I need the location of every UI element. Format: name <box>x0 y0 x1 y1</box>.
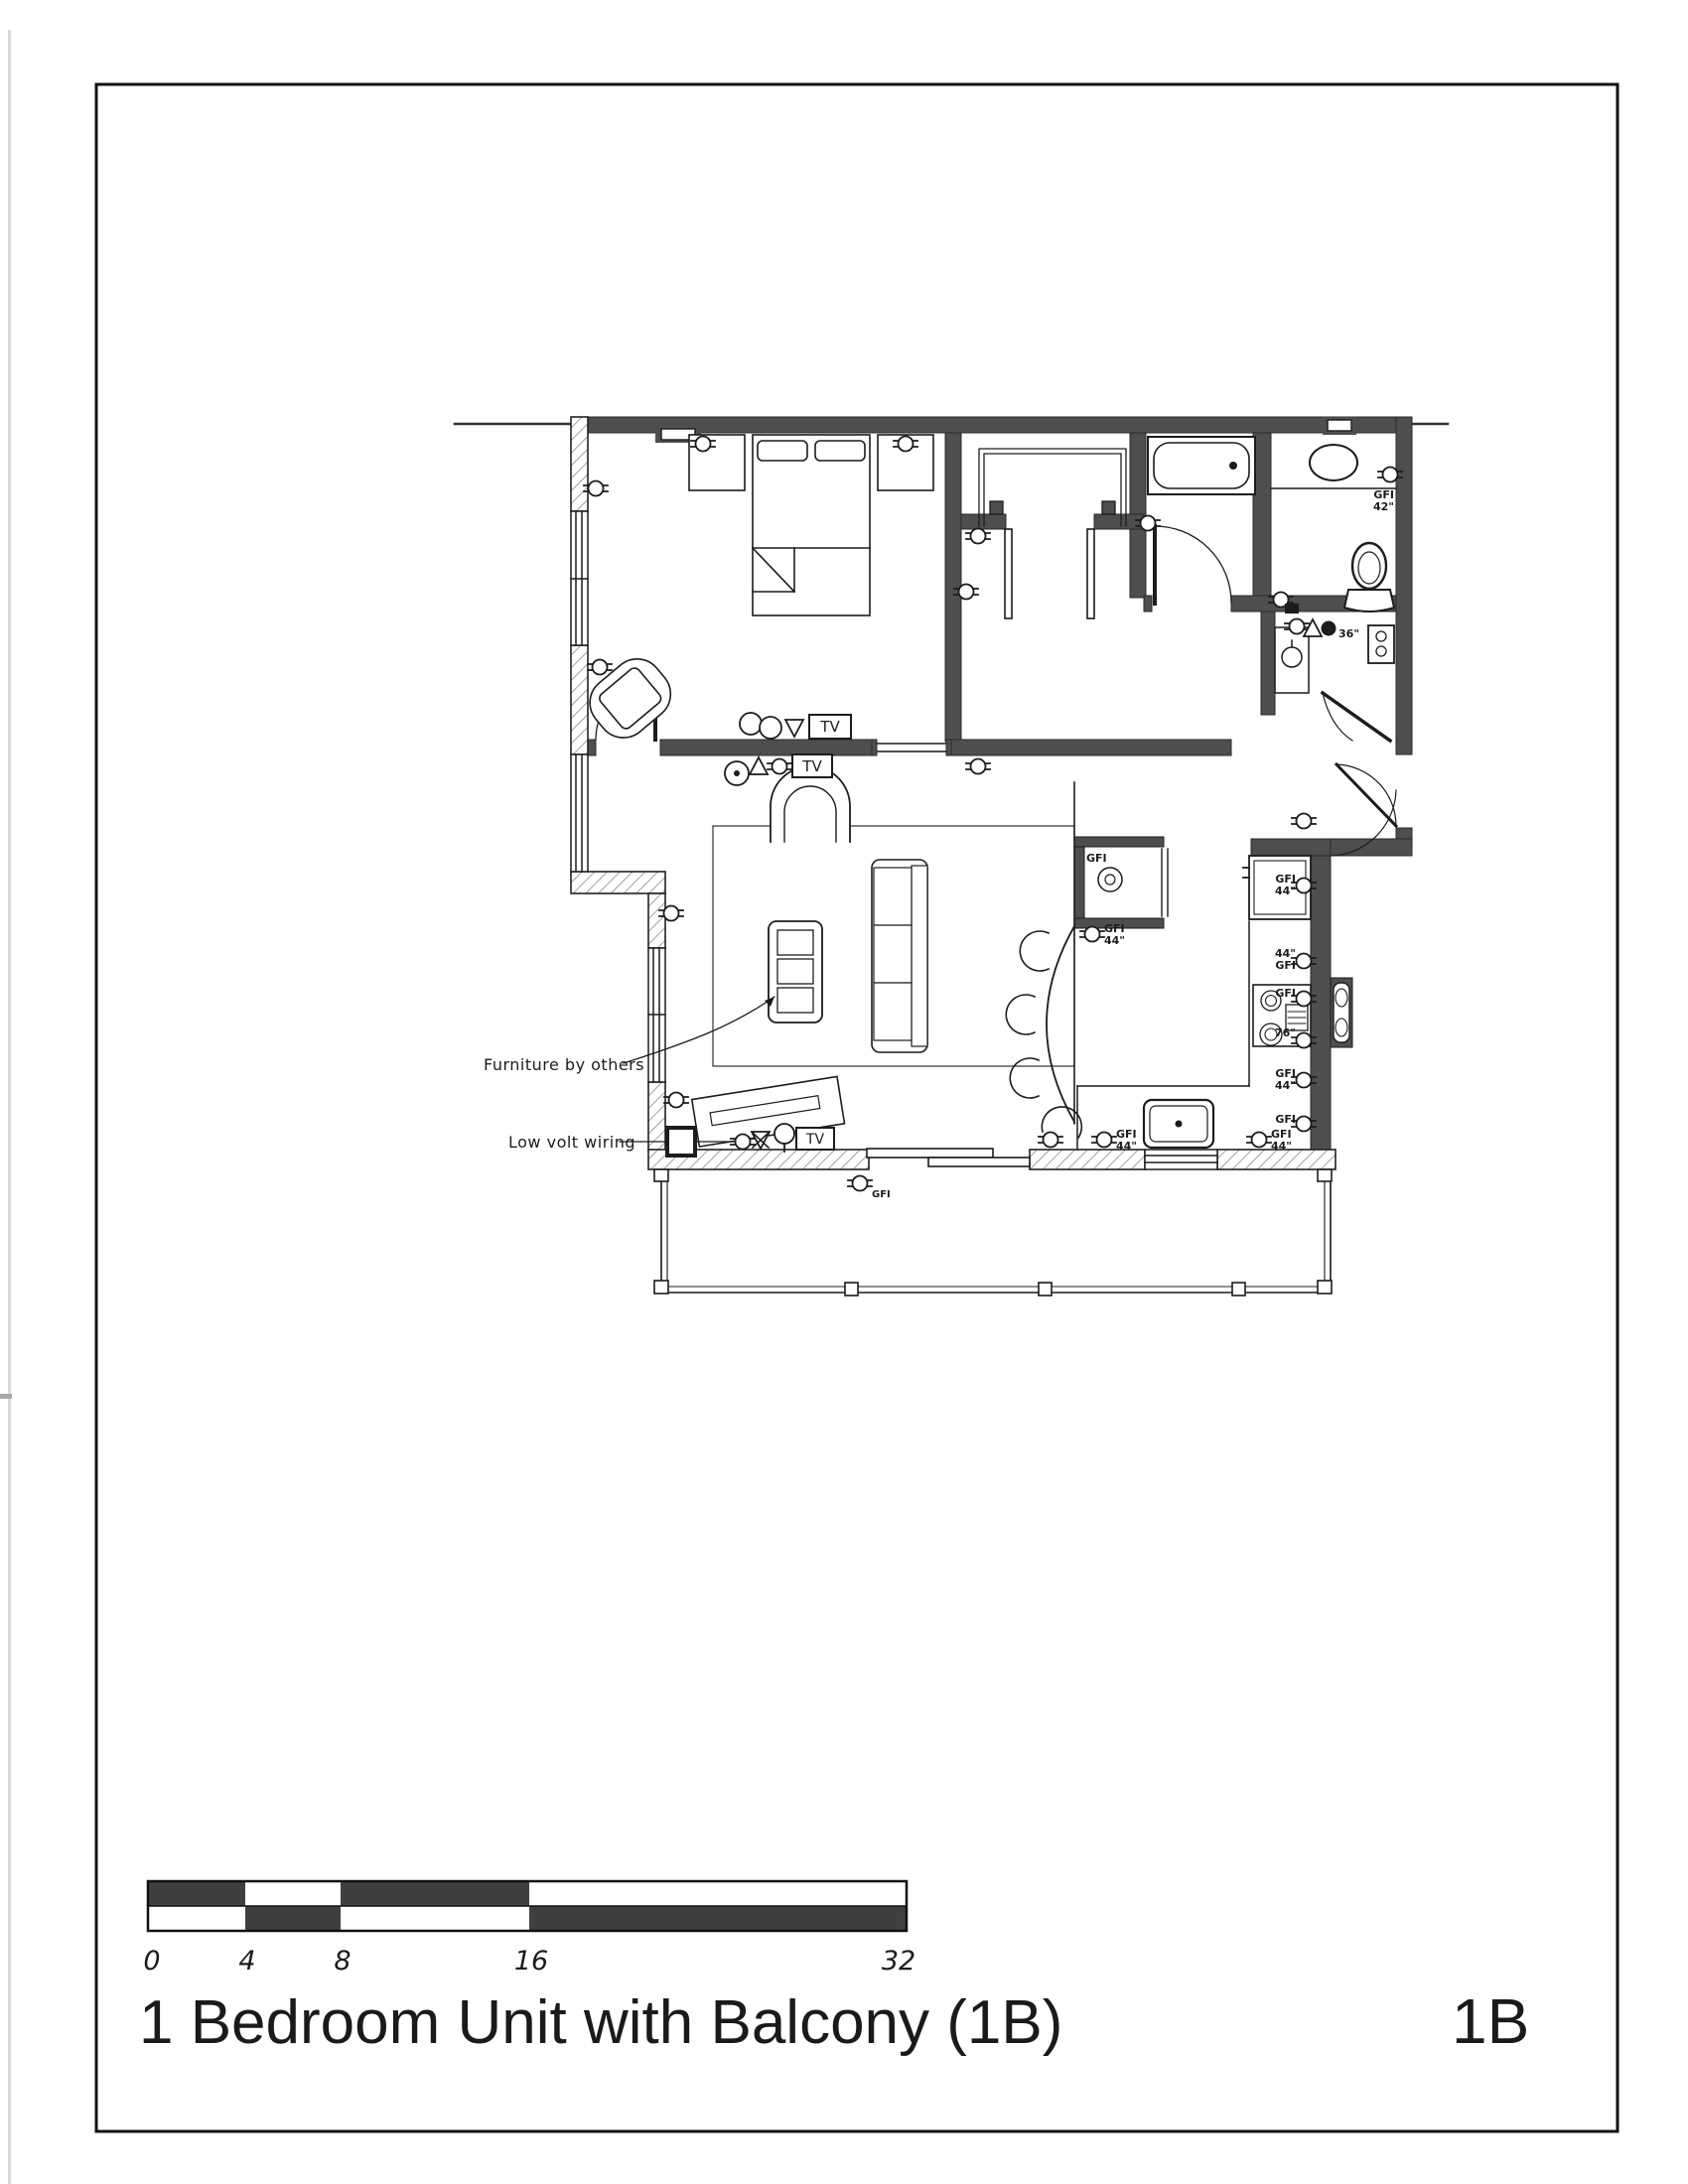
sheet-border <box>96 84 1618 2131</box>
svg-text:44": 44" <box>1116 1140 1137 1153</box>
low-volt-note: Low volt wiring <box>508 1133 635 1152</box>
dining-chair <box>1006 931 1081 1138</box>
phone-jack <box>1285 604 1299 614</box>
living-room <box>667 766 1074 1156</box>
svg-text:GFI: GFI <box>1086 852 1107 865</box>
svg-text:76": 76" <box>1275 1026 1296 1039</box>
toilet <box>1344 543 1394 612</box>
bedroom-furniture <box>580 435 933 749</box>
tv-label: TV <box>801 757 822 775</box>
speaker-symbol <box>774 1124 794 1144</box>
scan-artifact-line <box>8 30 11 2184</box>
pantry-closet <box>1074 837 1168 928</box>
furniture-note: Furniture by others <box>484 1055 644 1074</box>
svg-text:44": 44" <box>1275 1079 1296 1092</box>
coffee-table <box>769 921 822 1023</box>
svg-text:44": 44" <box>1275 885 1296 897</box>
svg-text:GFI: GFI <box>872 1189 891 1200</box>
tv-label: TV <box>819 718 840 736</box>
control-device <box>760 717 781 739</box>
svg-text:42": 42" <box>1373 500 1394 513</box>
bathtub <box>1148 437 1255 494</box>
junction-box <box>1322 621 1336 635</box>
svg-text:GFI: GFI <box>1275 959 1296 972</box>
floor-plan: TV TV TV GFI 44" GFI 44" 44" GFI GFI <box>455 417 1448 1296</box>
sliding-door <box>867 1149 1030 1166</box>
railing-post <box>654 1169 1332 1296</box>
drawing-sheet: TV TV TV GFI 44" GFI 44" 44" GFI GFI <box>0 0 1688 2184</box>
svg-text:GFI: GFI <box>1275 1113 1296 1126</box>
kitchen-sink <box>1144 1100 1213 1148</box>
laundry-sink <box>1282 647 1302 667</box>
washer-box <box>1368 625 1394 663</box>
sofa <box>872 860 927 1052</box>
closet-shelving <box>979 449 1126 526</box>
laundry-alcove <box>1275 619 1394 694</box>
svg-text:0: 0 <box>143 1946 160 1977</box>
scale-bar: 0 4 8 16 32 <box>143 1881 915 1977</box>
svg-text:16: 16 <box>514 1946 548 1977</box>
bathroom <box>1148 437 1396 612</box>
scan-artifact-tick <box>0 1394 12 1399</box>
floor-plan-drawing: TV TV TV GFI 44" GFI 44" 44" GFI GFI <box>0 0 1688 2184</box>
svg-text:8: 8 <box>334 1946 351 1977</box>
dining-bar <box>1006 782 1081 1138</box>
svg-text:44": 44" <box>1104 934 1125 947</box>
svg-text:44": 44" <box>1271 1140 1292 1153</box>
wall-appliance <box>1331 978 1352 1047</box>
svg-text:GFI: GFI <box>1275 987 1296 1000</box>
sheet-title: 1 Bedroom Unit with Balcony (1B) <box>139 1988 1062 2057</box>
svg-text:36": 36" <box>1338 627 1359 640</box>
bed <box>753 435 870 615</box>
bathroom-sink <box>1310 445 1357 480</box>
sheet-code: 1B <box>1452 1985 1529 2057</box>
balcony <box>654 1169 1332 1296</box>
svg-text:32: 32 <box>882 1946 915 1977</box>
scale-bar-labels: 0 4 8 16 32 <box>143 1946 915 1977</box>
svg-text:4: 4 <box>238 1946 255 1977</box>
leader-line <box>624 997 774 1063</box>
thermostat <box>740 713 762 735</box>
tv-label: TV <box>805 1132 825 1148</box>
